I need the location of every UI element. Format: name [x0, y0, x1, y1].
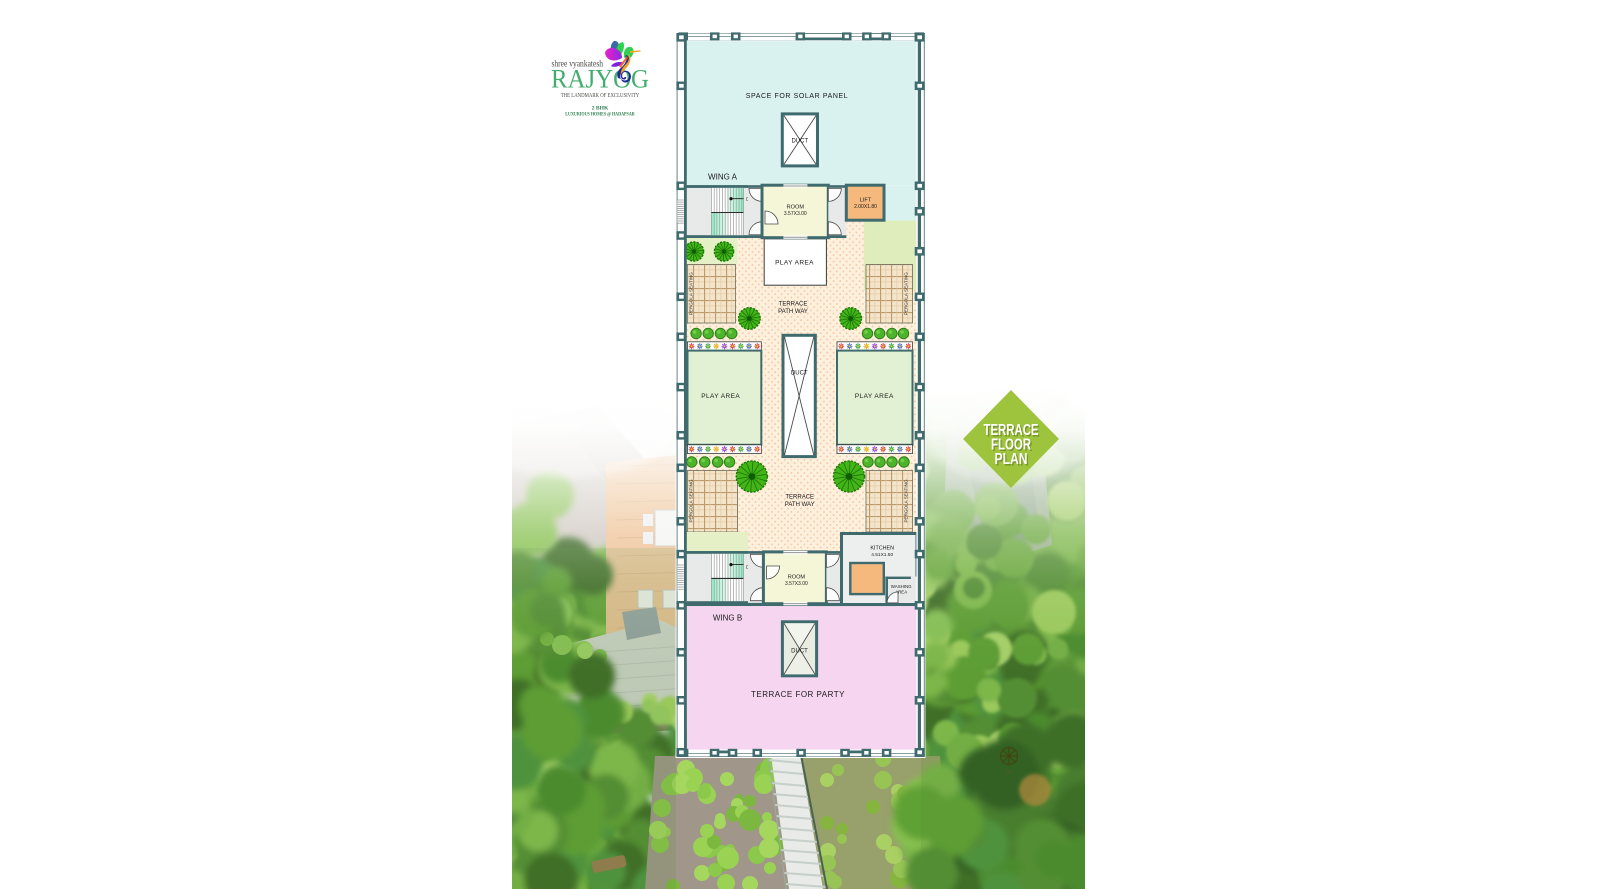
- svg-text:WASHING: WASHING: [891, 584, 912, 589]
- svg-text:ROOM: ROOM: [788, 575, 806, 581]
- svg-text:TERRACE: TERRACE: [785, 495, 814, 501]
- svg-text:LUXURIOUS HOMES @ HADAPSAR: LUXURIOUS HOMES @ HADAPSAR: [565, 111, 635, 117]
- svg-text:ROOM: ROOM: [787, 205, 805, 211]
- svg-text:WING A: WING A: [708, 173, 738, 182]
- svg-text:2.00X1.80: 2.00X1.80: [854, 204, 877, 210]
- svg-text:PLAY AREA: PLAY AREA: [701, 393, 740, 400]
- svg-text:TERRACE FOR PARTY: TERRACE FOR PARTY: [751, 690, 845, 699]
- svg-text:PLAN: PLAN: [995, 451, 1028, 468]
- svg-text:DUCT: DUCT: [791, 139, 808, 145]
- svg-text:DUCT: DUCT: [791, 371, 808, 377]
- svg-text:PLAY AREA: PLAY AREA: [775, 259, 814, 266]
- svg-text:THE LANDMARK OF EXCLUSIVITY: THE LANDMARK OF EXCLUSIVITY: [561, 92, 640, 99]
- svg-text:TERRACE: TERRACE: [779, 302, 808, 308]
- svg-text:3.57X3.00: 3.57X3.00: [785, 581, 808, 587]
- svg-text:KITCHEN: KITCHEN: [870, 546, 894, 552]
- svg-text:N: N: [1007, 770, 1011, 776]
- svg-text:PERGOLA SEATING: PERGOLA SEATING: [904, 272, 909, 315]
- svg-text:3.57X3.00: 3.57X3.00: [784, 211, 807, 217]
- svg-text:WING B: WING B: [713, 614, 742, 623]
- svg-text:4.51X1.50: 4.51X1.50: [871, 552, 893, 558]
- svg-text:DUCT: DUCT: [791, 649, 808, 655]
- svg-text:SPACE FOR SOLAR PANEL: SPACE FOR SOLAR PANEL: [746, 93, 849, 100]
- svg-text:PERGOLA SEATING: PERGOLA SEATING: [689, 272, 694, 315]
- svg-text:RAJYOG: RAJYOG: [551, 64, 649, 94]
- svg-text:PATH WAY: PATH WAY: [778, 309, 808, 315]
- svg-text:PERGOLA SEATING: PERGOLA SEATING: [689, 479, 694, 522]
- svg-text:PATH WAY: PATH WAY: [785, 502, 815, 508]
- svg-text:PERGOLA SEATING: PERGOLA SEATING: [904, 479, 909, 522]
- svg-text:LIFT: LIFT: [860, 198, 872, 204]
- svg-text:PLAY AREA: PLAY AREA: [855, 393, 894, 400]
